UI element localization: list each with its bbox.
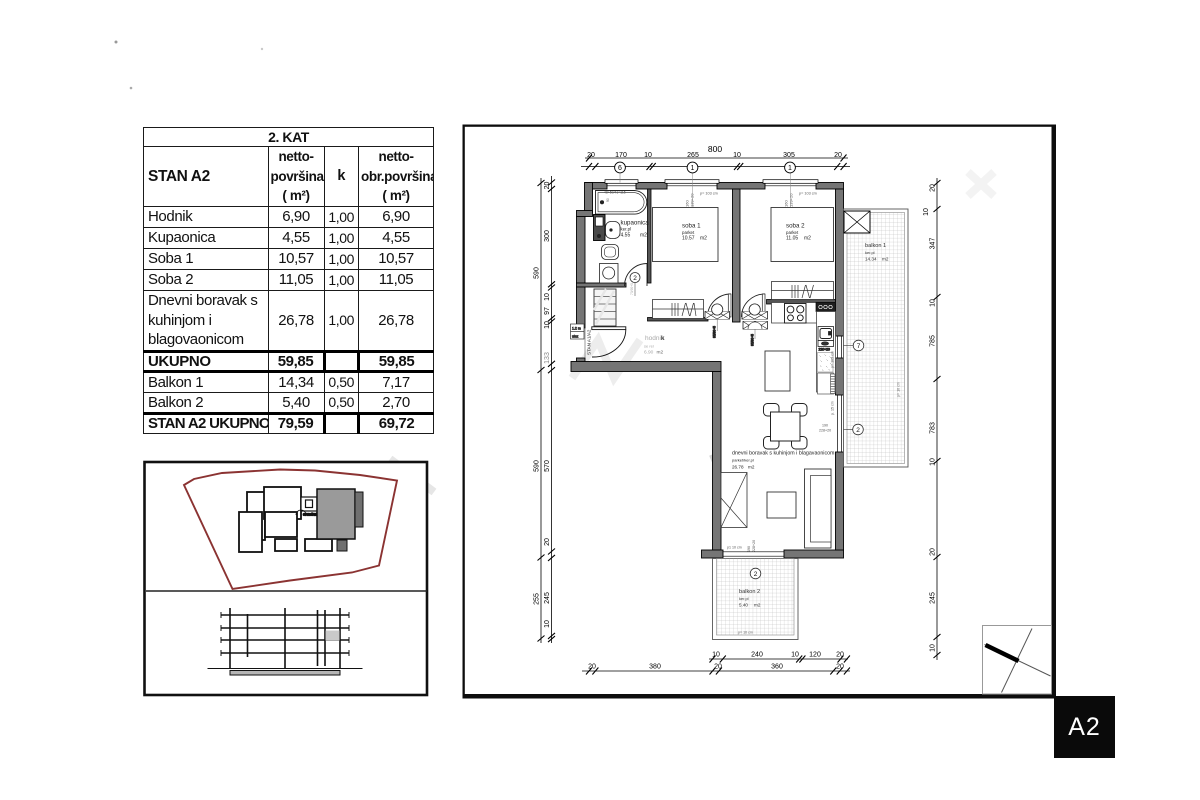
svg-text:20: 20 — [836, 664, 844, 671]
svg-text:p= 10 cm: p= 10 cm — [738, 631, 753, 635]
svg-text:10: 10 — [712, 652, 720, 659]
svg-text:170: 170 — [615, 152, 627, 159]
svg-text:10: 10 — [544, 293, 551, 301]
svg-text:20: 20 — [834, 152, 842, 159]
svg-text:20: 20 — [544, 538, 551, 546]
svg-text:20: 20 — [930, 548, 937, 556]
svg-text:85/90+5: 85/90+5 — [713, 326, 717, 338]
svg-text:STAN A1/A2: STAN A1/A2 — [587, 329, 592, 355]
svg-text:48+50/41=115: 48+50/41=115 — [604, 191, 626, 195]
svg-text:ker.pl: ker.pl — [739, 596, 749, 601]
svg-text:m2: m2 — [804, 236, 811, 242]
svg-text:245: 245 — [544, 592, 551, 604]
svg-text:570: 570 — [544, 460, 551, 472]
svg-text:1: 1 — [788, 165, 792, 172]
svg-text:p1 10 cm: p1 10 cm — [727, 546, 742, 550]
svg-text:ker.pl: ker.pl — [621, 227, 632, 232]
svg-text:380: 380 — [649, 664, 661, 671]
svg-text:10: 10 — [791, 652, 799, 659]
svg-text:hodnik: hodnik — [645, 335, 665, 342]
svg-text:dnevni boravak s kuhinjom i bl: dnevni boravak s kuhinjom i blagavaonico… — [732, 451, 835, 457]
svg-text:245: 245 — [930, 592, 937, 604]
svg-text:20: 20 — [544, 182, 551, 190]
svg-text:2: 2 — [754, 571, 758, 578]
svg-text:10.57: 10.57 — [682, 236, 695, 242]
svg-text:4.55: 4.55 — [621, 233, 631, 239]
svg-text:133: 133 — [544, 352, 551, 364]
svg-text:590: 590 — [534, 460, 541, 472]
svg-text:240: 240 — [751, 652, 763, 659]
svg-text:kupaonica: kupaonica — [621, 220, 650, 227]
svg-text:190: 190 — [822, 424, 828, 428]
svg-text:7: 7 — [857, 343, 861, 350]
svg-text:parket: parket — [786, 230, 799, 235]
svg-text:se rel: se rel — [644, 344, 654, 349]
svg-text:11.05: 11.05 — [786, 236, 798, 242]
svg-text:783: 783 — [930, 422, 937, 434]
svg-text:305: 305 — [783, 152, 795, 159]
svg-text:soba 1: soba 1 — [682, 223, 701, 230]
svg-text:139+20: 139+20 — [690, 193, 695, 207]
svg-text:20: 20 — [836, 652, 844, 659]
svg-text:2: 2 — [633, 275, 637, 282]
svg-text:ker.pl: ker.pl — [865, 250, 875, 255]
svg-text:10: 10 — [644, 152, 652, 159]
svg-text:10: 10 — [544, 620, 551, 628]
svg-text:m2: m2 — [657, 350, 664, 356]
svg-text:soba 2: soba 2 — [786, 223, 805, 230]
svg-text:70/90+5: 70/90+5 — [630, 283, 634, 295]
svg-text:190: 190 — [747, 546, 751, 552]
svg-text:m2: m2 — [748, 465, 755, 470]
svg-text:balkon 1: balkon 1 — [865, 243, 886, 249]
svg-text:m2: m2 — [700, 236, 707, 242]
svg-text:10: 10 — [930, 644, 937, 652]
svg-text:10: 10 — [544, 321, 551, 329]
svg-text:265: 265 — [687, 152, 699, 159]
svg-text:590: 590 — [534, 267, 541, 279]
svg-text:20: 20 — [930, 184, 937, 192]
svg-text:90: 90 — [606, 198, 610, 202]
svg-text:5.40: 5.40 — [739, 603, 748, 608]
svg-text:785: 785 — [930, 335, 937, 347]
svg-text:m2: m2 — [882, 256, 889, 261]
svg-text:10: 10 — [930, 458, 937, 466]
svg-text:m2: m2 — [640, 233, 647, 239]
svg-text:p= 105 cm: p= 105 cm — [831, 351, 835, 368]
svg-text:97: 97 — [544, 307, 551, 315]
svg-text:139+20: 139+20 — [789, 193, 794, 207]
svg-text:220+20: 220+20 — [819, 348, 831, 352]
svg-text:10: 10 — [733, 152, 741, 159]
svg-text:1.2 m: 1.2 m — [572, 327, 581, 331]
svg-text:120: 120 — [809, 652, 821, 659]
svg-text:228+20: 228+20 — [752, 540, 756, 552]
svg-text:255: 255 — [534, 593, 541, 605]
svg-text:20: 20 — [588, 664, 596, 671]
svg-text:347: 347 — [930, 238, 937, 250]
svg-text:p= 16 cm: p= 16 cm — [897, 382, 901, 397]
svg-text:2: 2 — [856, 427, 860, 434]
svg-text:balkon 2: balkon 2 — [739, 589, 760, 595]
svg-text:parket: parket — [682, 230, 695, 235]
svg-text:10: 10 — [930, 299, 937, 307]
svg-text:6.90: 6.90 — [644, 350, 654, 356]
svg-text:p. 15 cm: p. 15 cm — [831, 401, 835, 415]
svg-text:10: 10 — [923, 208, 930, 216]
svg-text:26.78: 26.78 — [732, 465, 744, 470]
svg-text:20: 20 — [714, 664, 722, 671]
svg-text:228+20: 228+20 — [819, 429, 831, 433]
svg-text:p= 103 cm: p= 103 cm — [799, 192, 817, 196]
svg-text:800: 800 — [708, 144, 722, 154]
svg-text:m2: m2 — [754, 603, 761, 608]
svg-text:300: 300 — [544, 230, 551, 242]
svg-text:ulaz: ulaz — [572, 335, 579, 339]
svg-text:85/90+5: 85/90+5 — [751, 334, 755, 346]
svg-text:6: 6 — [618, 165, 622, 172]
svg-text:parket/ker.pl: parket/ker.pl — [732, 458, 754, 463]
svg-text:p= 103 cm: p= 103 cm — [700, 192, 718, 196]
svg-text:1: 1 — [691, 165, 695, 172]
svg-text:14.34: 14.34 — [865, 256, 877, 261]
svg-text:360: 360 — [771, 664, 783, 671]
svg-text:20: 20 — [587, 152, 595, 159]
